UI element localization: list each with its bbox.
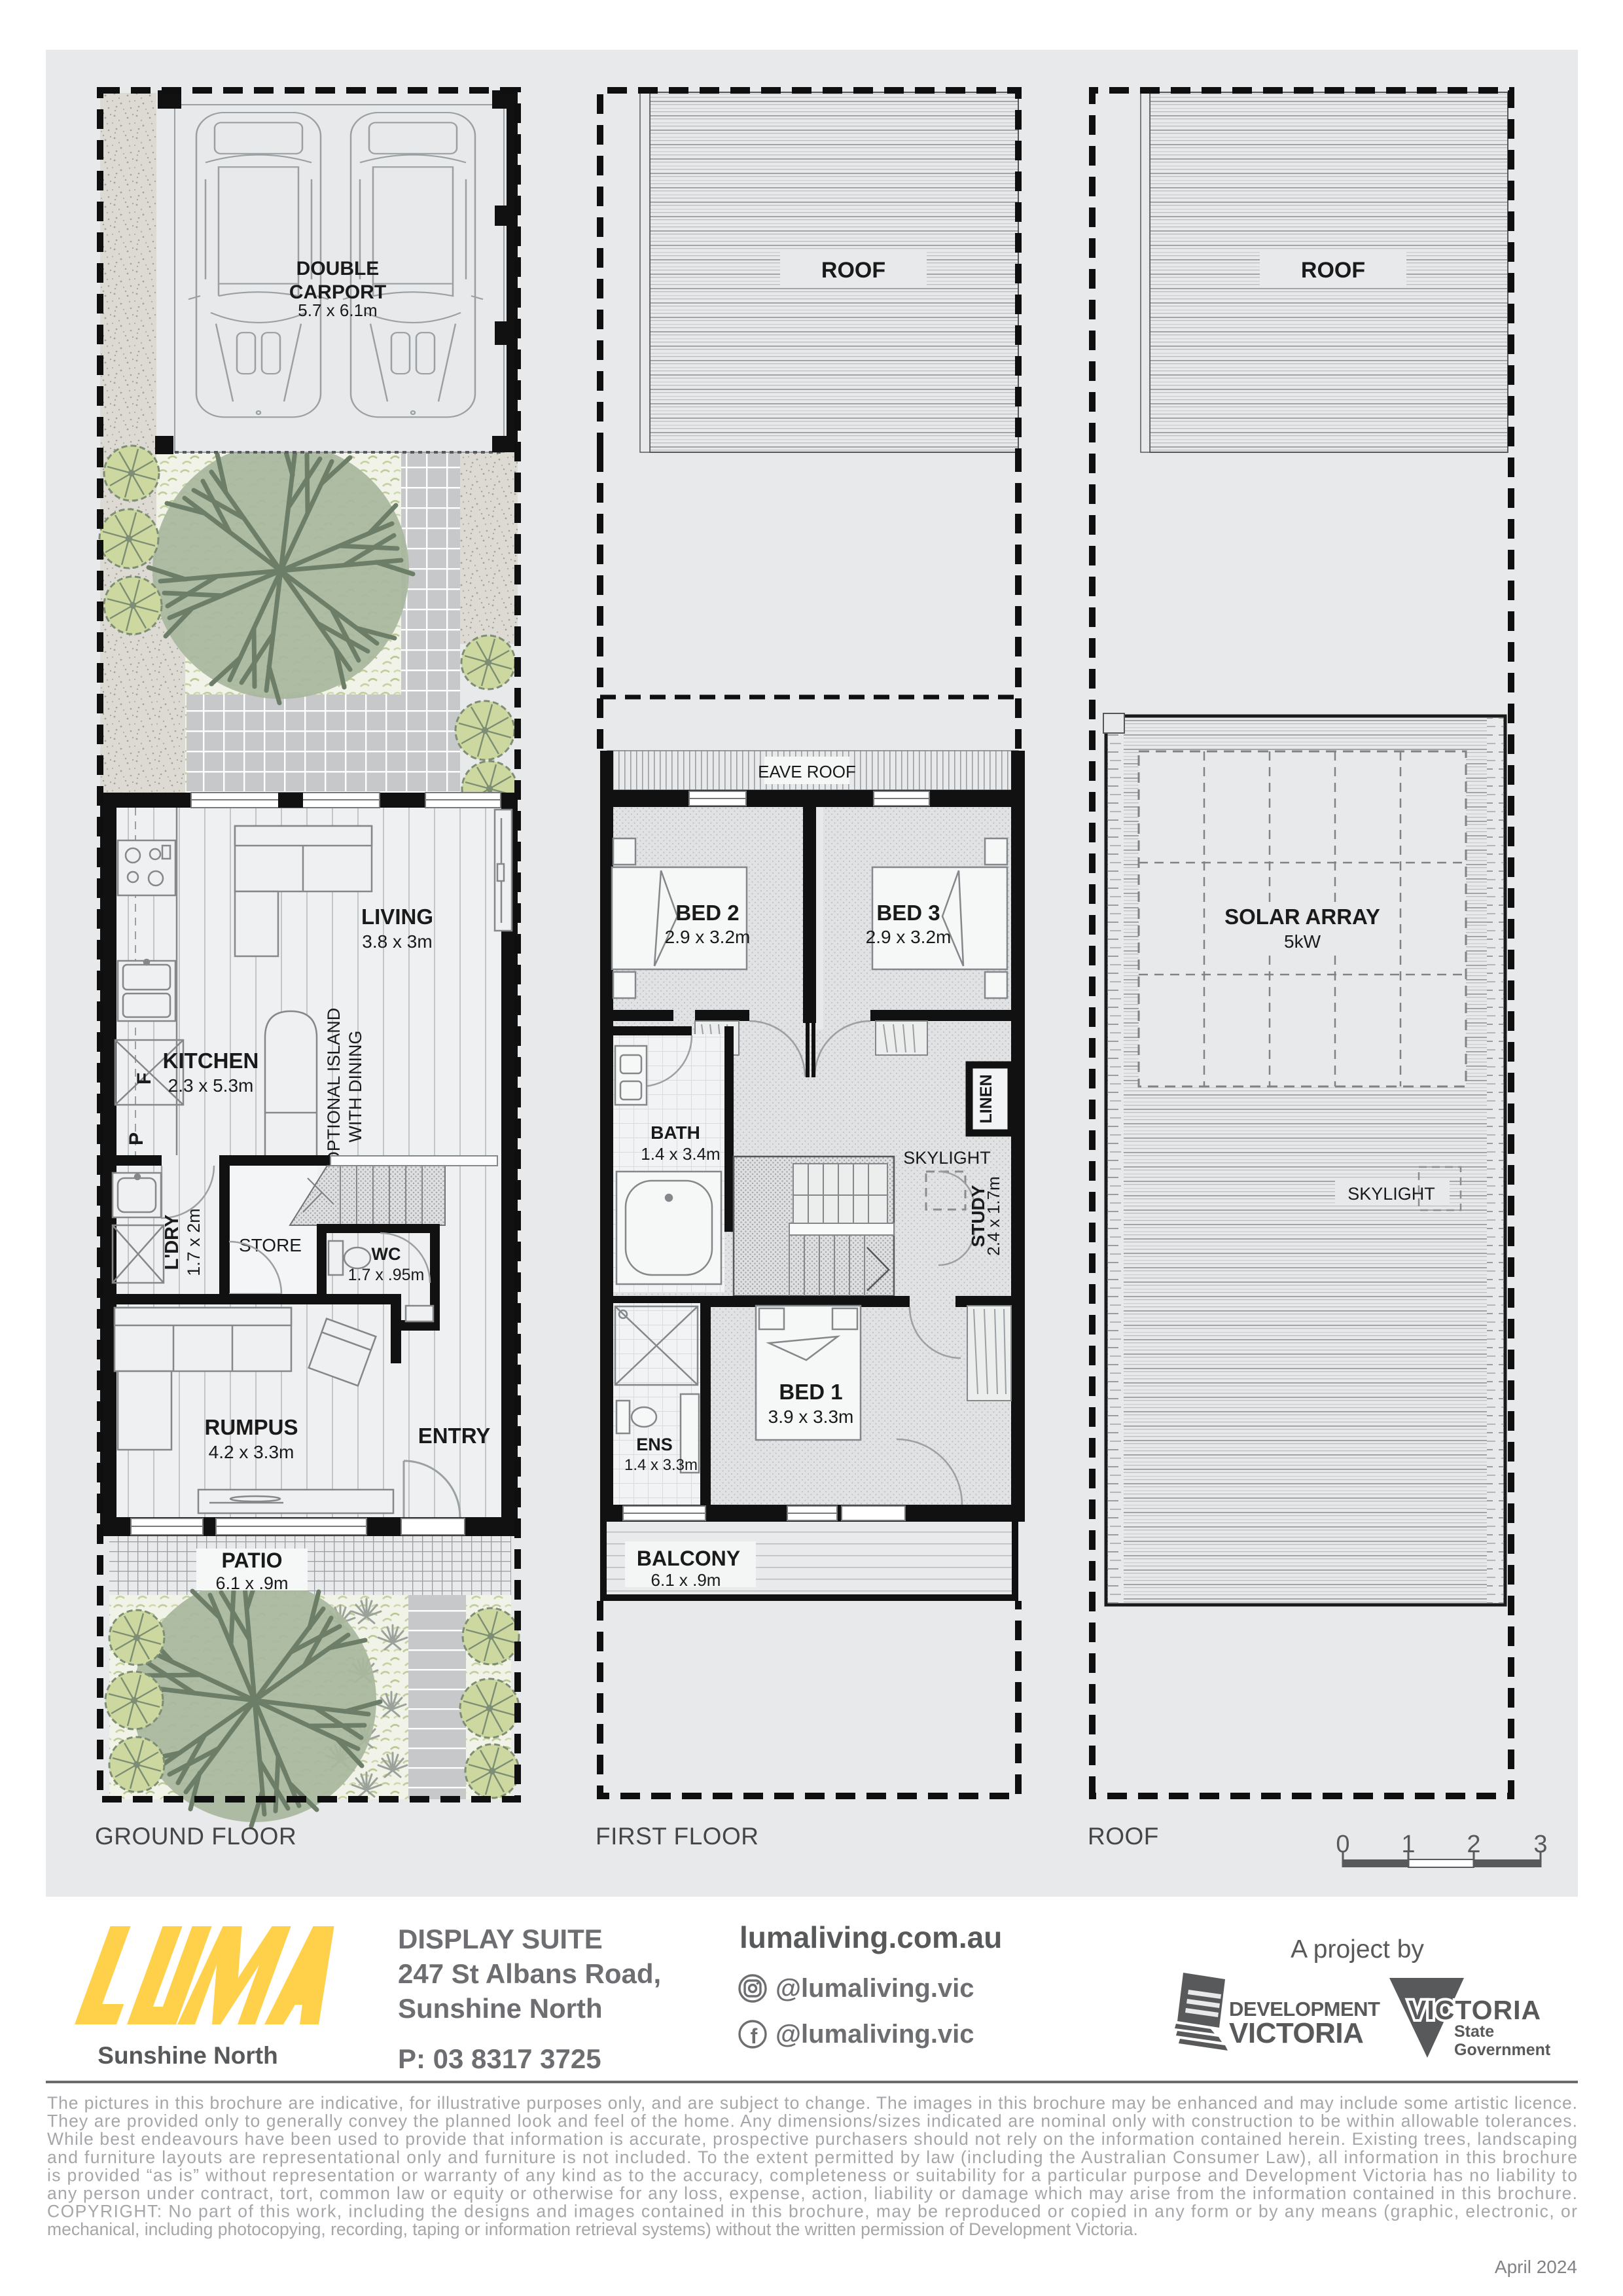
svg-text:RUMPUS: RUMPUS <box>204 1415 298 1439</box>
svg-text:lumaliving.com.au: lumaliving.com.au <box>740 1920 1002 1954</box>
svg-text:They are provided only to gene: They are provided only to generally conv… <box>47 2111 1577 2131</box>
svg-text:WITH DINING: WITH DINING <box>346 1031 365 1143</box>
svg-text:P: 03 8317 3725: P: 03 8317 3725 <box>398 2043 601 2074</box>
svg-text:6.1 x .9m: 6.1 x .9m <box>651 1570 721 1590</box>
svg-text:COPYRIGHT: No part of this wor: COPYRIGHT: No part of this work, includi… <box>47 2202 1577 2221</box>
svg-text:2.9 x 3.2m: 2.9 x 3.2m <box>665 927 751 947</box>
svg-text:1.7 x 2m: 1.7 x 2m <box>184 1208 204 1276</box>
svg-text:State: State <box>1454 2022 1494 2041</box>
svg-text:LINEN: LINEN <box>977 1075 995 1124</box>
svg-text:LIVING: LIVING <box>361 905 433 929</box>
svg-text:FIRST FLOOR: FIRST FLOOR <box>596 1823 758 1850</box>
svg-text:BALCONY: BALCONY <box>637 1547 740 1570</box>
svg-text:is provided “as is” without re: is provided “as is” without representati… <box>47 2165 1577 2185</box>
svg-text:BATH: BATH <box>651 1122 700 1143</box>
svg-text:mechanical, including photocop: mechanical, including photocopying, reco… <box>47 2219 1138 2239</box>
svg-text:247 St Albans Road,: 247 St Albans Road, <box>398 1958 661 1989</box>
svg-text:SOLAR ARRAY: SOLAR ARRAY <box>1224 905 1380 929</box>
svg-text:3.9 x 3.3m: 3.9 x 3.3m <box>768 1407 854 1427</box>
svg-text:While best endeavours have bee: While best endeavours have been used to … <box>47 2129 1577 2149</box>
svg-text:SKYLIGHT: SKYLIGHT <box>1347 1184 1435 1204</box>
svg-text:ROOF: ROOF <box>1301 258 1365 283</box>
svg-text:L'DRY: L'DRY <box>162 1215 183 1270</box>
svg-text:BED 1: BED 1 <box>779 1380 842 1404</box>
svg-text:6.1 x .9m: 6.1 x .9m <box>215 1573 288 1593</box>
svg-text:ROOF: ROOF <box>1088 1823 1159 1850</box>
svg-text:@lumaliving.vic: @lumaliving.vic <box>776 2020 974 2049</box>
svg-text:EAVE ROOF: EAVE ROOF <box>758 762 856 781</box>
svg-text:A project by: A project by <box>1291 1935 1424 1964</box>
svg-text:BED 3: BED 3 <box>876 901 940 925</box>
svg-text:DOUBLE: DOUBLE <box>296 258 380 279</box>
svg-text:WC: WC <box>372 1244 401 1264</box>
svg-text:GROUND FLOOR: GROUND FLOOR <box>95 1823 296 1850</box>
svg-text:ENS: ENS <box>636 1435 673 1454</box>
svg-text:April 2024: April 2024 <box>1495 2257 1577 2277</box>
svg-text:F: F <box>134 1073 155 1085</box>
svg-text:ROOF: ROOF <box>821 258 885 283</box>
svg-text:1.4 x 3.3m: 1.4 x 3.3m <box>624 1456 698 1474</box>
svg-text:PATIO: PATIO <box>221 1549 282 1572</box>
svg-text:4.2 x 3.3m: 4.2 x 3.3m <box>209 1442 294 1462</box>
svg-text:OPTIONAL ISLAND: OPTIONAL ISLAND <box>324 1008 344 1166</box>
svg-text:KITCHEN: KITCHEN <box>163 1049 259 1073</box>
svg-text:any person under contract, tor: any person under contract, tort, common … <box>47 2183 1577 2203</box>
svg-text:VICTORIA: VICTORIA <box>1408 1995 1541 2025</box>
svg-text:ENTRY: ENTRY <box>418 1424 491 1448</box>
svg-text:2.4 x 1.7m: 2.4 x 1.7m <box>984 1176 1003 1255</box>
svg-text:BED 2: BED 2 <box>675 901 739 925</box>
svg-text:Government: Government <box>1454 2041 1551 2059</box>
svg-text:SKYLIGHT: SKYLIGHT <box>903 1148 991 1168</box>
svg-text:2.9 x 3.2m: 2.9 x 3.2m <box>866 927 952 947</box>
svg-text:f: f <box>751 2024 758 2048</box>
svg-text:1.7 x .95m: 1.7 x .95m <box>348 1266 425 1284</box>
svg-text:Sunshine North: Sunshine North <box>398 1993 603 2024</box>
svg-text:5.7 x 6.1m: 5.7 x 6.1m <box>298 300 377 320</box>
svg-text:Sunshine North: Sunshine North <box>98 2042 277 2069</box>
svg-text:@lumaliving.vic: @lumaliving.vic <box>776 1974 974 2003</box>
svg-text:1.4 x 3.4m: 1.4 x 3.4m <box>641 1144 720 1164</box>
svg-text:and furniture layouts are repr: and furniture layouts are representation… <box>47 2147 1577 2167</box>
svg-text:5kW: 5kW <box>1284 931 1321 952</box>
svg-text:2.3 x 5.3m: 2.3 x 5.3m <box>168 1075 254 1096</box>
svg-text:VICTORIA: VICTORIA <box>1229 2017 1363 2049</box>
svg-text:DISPLAY SUITE: DISPLAY SUITE <box>398 1924 603 1954</box>
svg-text:3.8 x 3m: 3.8 x 3m <box>362 931 432 952</box>
svg-text:The pictures in this brochure: The pictures in this brochure are indica… <box>47 2093 1577 2113</box>
svg-text:P: P <box>126 1132 147 1145</box>
